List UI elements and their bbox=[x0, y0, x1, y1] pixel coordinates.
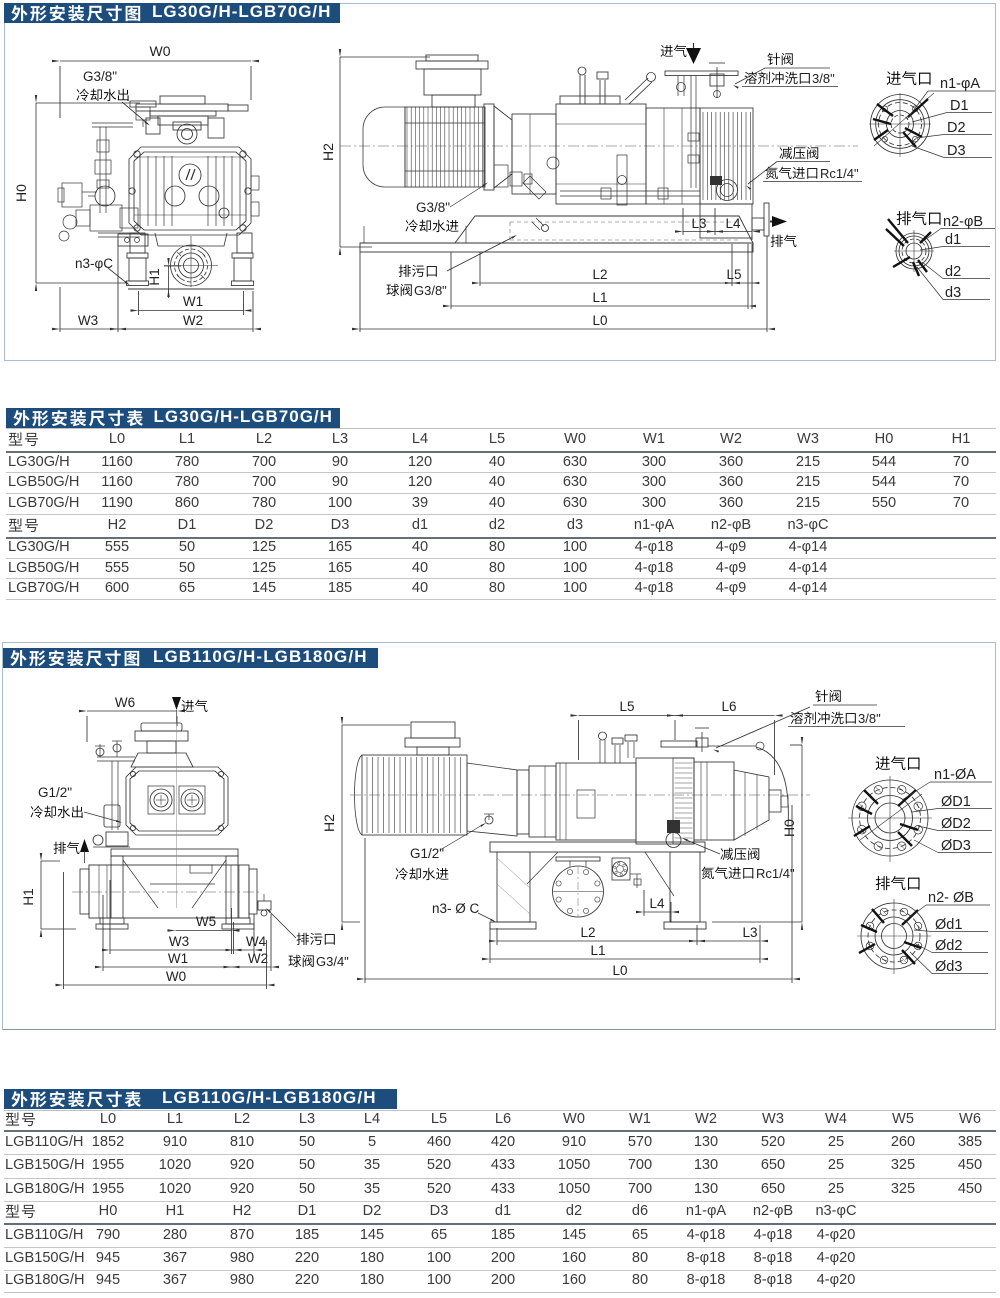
svg-text:ØD2: ØD2 bbox=[941, 816, 971, 832]
svg-text:G3/4": G3/4" bbox=[316, 954, 349, 969]
svg-text:L0: L0 bbox=[612, 963, 627, 978]
svg-text:G3/8": G3/8" bbox=[414, 283, 447, 298]
svg-text:n3-φC: n3-φC bbox=[75, 256, 113, 271]
svg-text:n2-φB: n2-φB bbox=[943, 214, 983, 230]
svg-text:H2: H2 bbox=[321, 814, 337, 832]
svg-text:W2: W2 bbox=[248, 951, 268, 966]
svg-text:H0: H0 bbox=[13, 184, 29, 202]
svg-text:L4: L4 bbox=[725, 216, 741, 231]
svg-text:3/8": 3/8" bbox=[812, 71, 835, 86]
svg-text:G1/2": G1/2" bbox=[38, 785, 72, 800]
svg-text:Rc1/4": Rc1/4" bbox=[820, 166, 859, 181]
svg-text:H2: H2 bbox=[320, 143, 336, 161]
svg-text:d1: d1 bbox=[945, 232, 961, 248]
svg-text:d3: d3 bbox=[945, 285, 961, 301]
svg-text:L3: L3 bbox=[742, 925, 757, 940]
svg-text:ØD1: ØD1 bbox=[941, 794, 971, 810]
svg-text:L5: L5 bbox=[726, 267, 741, 282]
svg-text:W3: W3 bbox=[169, 934, 189, 949]
svg-text:L1: L1 bbox=[592, 290, 607, 305]
svg-text:n1-ØA: n1-ØA bbox=[934, 767, 976, 783]
svg-text:L1: L1 bbox=[590, 943, 605, 958]
svg-text:n2- ØB: n2- ØB bbox=[928, 890, 974, 906]
svg-text:W1: W1 bbox=[183, 294, 203, 309]
svg-text:Ød3: Ød3 bbox=[935, 959, 962, 975]
svg-text:ØD3: ØD3 bbox=[941, 838, 971, 854]
svg-text:H0: H0 bbox=[781, 819, 797, 837]
svg-text:L0: L0 bbox=[592, 313, 607, 328]
svg-text:Ød2: Ød2 bbox=[935, 938, 962, 954]
svg-text:D2: D2 bbox=[947, 120, 966, 136]
svg-text:W2: W2 bbox=[183, 313, 203, 328]
svg-text:L4: L4 bbox=[649, 896, 665, 911]
svg-text:L2: L2 bbox=[580, 925, 595, 940]
svg-text:W6: W6 bbox=[115, 695, 135, 710]
svg-text:W1: W1 bbox=[168, 951, 188, 966]
svg-text:L3: L3 bbox=[691, 216, 706, 231]
svg-text:H1: H1 bbox=[147, 268, 162, 285]
svg-text:W4: W4 bbox=[246, 934, 267, 949]
svg-text:n1-φA: n1-φA bbox=[940, 76, 980, 92]
svg-text:H1: H1 bbox=[21, 888, 36, 905]
svg-text:W0: W0 bbox=[166, 969, 186, 984]
svg-text:L2: L2 bbox=[592, 267, 607, 282]
svg-text:D3: D3 bbox=[947, 143, 966, 159]
svg-text:D1: D1 bbox=[950, 98, 969, 114]
svg-text:G3/8": G3/8" bbox=[83, 69, 117, 84]
svg-text:W5: W5 bbox=[196, 914, 216, 929]
svg-text:G1/2": G1/2" bbox=[410, 846, 444, 861]
svg-text:Rc1/4": Rc1/4" bbox=[756, 866, 795, 881]
svg-text:3/8": 3/8" bbox=[858, 711, 881, 726]
svg-text:d2: d2 bbox=[945, 264, 961, 280]
svg-text:Ød1: Ød1 bbox=[935, 917, 962, 933]
svg-text:G3/8": G3/8" bbox=[416, 200, 450, 215]
svg-text:L6: L6 bbox=[721, 699, 736, 714]
svg-text:W0: W0 bbox=[150, 43, 171, 59]
svg-text:n3- Ø C: n3- Ø C bbox=[432, 901, 480, 916]
svg-text:L5: L5 bbox=[619, 699, 634, 714]
svg-text:W3: W3 bbox=[78, 313, 98, 328]
